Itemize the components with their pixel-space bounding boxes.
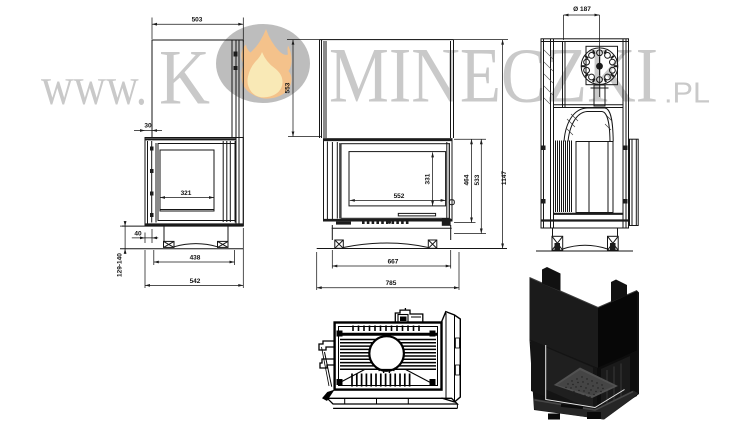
svg-text:503: 503 bbox=[192, 17, 203, 24]
svg-text:30: 30 bbox=[144, 123, 152, 130]
svg-text:1147: 1147 bbox=[501, 171, 508, 185]
svg-text:Ø 187: Ø 187 bbox=[573, 6, 591, 13]
svg-text:552: 552 bbox=[394, 193, 405, 200]
svg-text:40: 40 bbox=[134, 230, 142, 237]
svg-text:667: 667 bbox=[388, 258, 399, 265]
svg-text:533: 533 bbox=[474, 174, 481, 185]
svg-text:321: 321 bbox=[181, 190, 192, 197]
svg-text:K: K bbox=[159, 34, 210, 121]
svg-text:129-140: 129-140 bbox=[117, 253, 124, 277]
svg-text:331: 331 bbox=[425, 173, 432, 184]
svg-text:553: 553 bbox=[285, 82, 292, 93]
svg-text:785: 785 bbox=[386, 280, 397, 287]
svg-text:542: 542 bbox=[190, 278, 201, 285]
svg-text:MINECZKI: MINECZKI bbox=[329, 32, 658, 119]
svg-text:438: 438 bbox=[190, 255, 201, 262]
svg-text:www.: www. bbox=[41, 56, 147, 116]
svg-text:.PL: .PL bbox=[664, 78, 710, 110]
svg-text:464: 464 bbox=[464, 174, 471, 185]
